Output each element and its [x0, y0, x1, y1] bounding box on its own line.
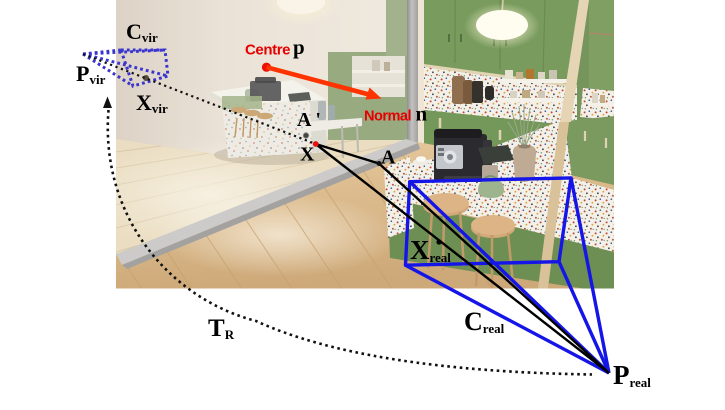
svg-text:Pvir: Pvir	[76, 61, 106, 87]
svg-text:A ': A '	[297, 109, 321, 131]
svg-text:Preal: Preal	[613, 360, 651, 390]
svg-text:A: A	[381, 147, 396, 169]
svg-text:TR: TR	[208, 315, 235, 342]
svg-text:Normal: Normal	[364, 109, 411, 125]
svg-text:Centre: Centre	[245, 42, 290, 59]
svg-text:Creal: Creal	[464, 307, 505, 336]
svg-text:X: X	[300, 144, 315, 166]
svg-text:n: n	[416, 102, 428, 126]
svg-text:p: p	[293, 35, 305, 59]
